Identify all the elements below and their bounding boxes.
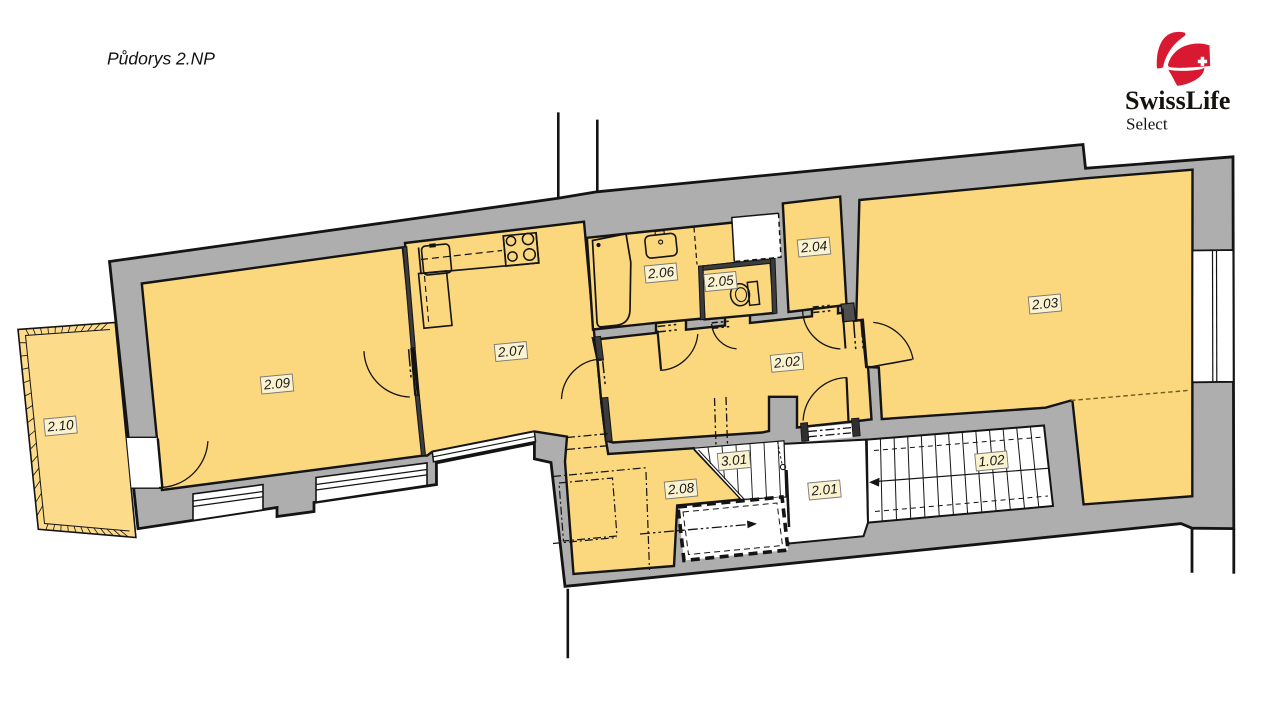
svg-text:2.02: 2.02 — [772, 353, 801, 371]
svg-text:SwissLife: SwissLife — [1125, 86, 1230, 115]
svg-text:2.05: 2.05 — [706, 273, 735, 291]
svg-text:2.01: 2.01 — [810, 481, 839, 499]
svg-text:2.04: 2.04 — [799, 238, 828, 256]
svg-text:Půdorys 2.NP: Půdorys 2.NP — [107, 49, 215, 69]
svg-text:2.08: 2.08 — [666, 480, 695, 498]
svg-text:2.07: 2.07 — [496, 343, 525, 361]
svg-text:3.01: 3.01 — [720, 452, 748, 469]
svg-text:Select: Select — [1126, 115, 1168, 134]
svg-text:1.02: 1.02 — [978, 452, 1006, 469]
svg-text:2.03: 2.03 — [1030, 295, 1059, 313]
svg-text:2.09: 2.09 — [262, 375, 291, 393]
svg-text:2.06: 2.06 — [646, 264, 675, 282]
svg-text:2.10: 2.10 — [46, 417, 75, 435]
